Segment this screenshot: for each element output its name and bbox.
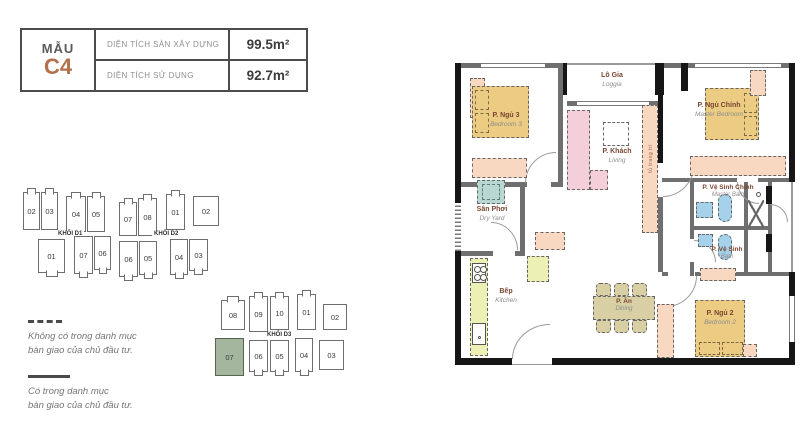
unit-box: 04 [66,196,86,232]
cabinet [535,232,565,250]
unit-box: 03 [41,192,58,230]
room-label-bath: P. Vệ Sinh Bath [693,246,761,262]
room-label-dry-yard: Sân Phơi Dry Yard [461,206,523,223]
window [481,63,545,68]
unit-box-highlighted: 07 [215,338,244,376]
legend: Không có trong danh mục bàn giao của chủ… [28,320,198,413]
tv-cabinet: tủ trang trí [642,105,658,233]
wall [690,262,694,276]
legend-solid-line [28,375,70,378]
room-name-en: Master Bedroom [679,111,759,119]
door-arc [512,324,550,359]
kitchen-sink [472,323,486,345]
room-name-vi: P. Vệ Sinh Chính [691,184,765,192]
legend-text-not-included: Không có trong danh mục bàn giao của chủ… [28,330,198,359]
legend-text-included: Có trong danh mục bàn giao của chủ đầu t… [28,385,198,414]
bed [695,300,745,357]
unit-box: 07 [74,236,93,274]
window [695,63,781,68]
room-label-bedroom3: P. Ngủ 3 Bedroom 3 [475,112,537,129]
room-label-master-bath: P. Vệ Sinh Chính Master Bath [691,184,765,200]
room-name-en: Dining [593,306,655,314]
area-rows: DIỆN TÍCH SÀN XÂY DỰNG 99.5m² DIỆN TÍCH … [96,30,306,90]
window [789,296,795,342]
wall-column [681,63,688,91]
room-name-vi: P. Vệ Sinh [693,246,761,254]
wall [766,186,772,204]
area-row-usable: DIỆN TÍCH SỬ DỤNG 92.7m² [96,61,306,90]
room-name-en: Bath [693,254,761,262]
washing-machine [477,180,505,204]
room-name-en: Living [591,157,643,165]
bathroom-sink [696,202,713,218]
dining-chair [614,283,629,296]
pillow [699,342,720,355]
unit-box: 10 [270,296,289,330]
unit-box: 05 [139,241,157,275]
room-name-vi: Sân Phơi [461,206,523,215]
legend-line: bàn giao của chủ đầu tư. [28,344,198,358]
door-arc [770,204,788,222]
dining-chair [632,283,647,296]
unit-box: 04 [295,338,313,372]
legend-dashed-line [28,320,62,323]
wardrobe [690,156,786,176]
kitchen-counter [470,258,488,356]
room-label-kitchen: Bếp Kitchen [477,288,535,305]
pillow [744,116,757,136]
washer-drum [482,184,500,200]
room-name-en: Bedroom 2 [683,319,757,327]
room-name-vi: Bếp [477,288,535,297]
room-name-en: Loggia [583,81,641,89]
door-arc [666,276,697,307]
room-name-vi: Lô Gia [583,72,641,81]
spec-table: MẪU C4 DIỆN TÍCH SÀN XÂY DỰNG 99.5m² DIỆ… [20,28,308,92]
door-arc [525,152,556,183]
model-label: MẪU [42,42,75,56]
room-name-vi: P. Khách [591,148,643,157]
room-label-bedroom2: P. Ngủ 2 Bedroom 2 [683,310,757,327]
coffee-table [603,122,629,146]
sofa [590,170,608,190]
wardrobe [472,158,527,178]
unit-box: 01 [38,239,65,273]
loggia-rail [563,63,663,65]
unit-box: 02 [323,304,347,330]
wall [658,197,663,272]
unit-box: 01 [166,194,185,230]
floorplan: tủ trang trí [455,56,795,368]
block-label-d2: KHỐI D2 [152,231,180,237]
unit-box: 09 [249,296,268,332]
wall [455,251,461,365]
block-diagram-d1-d2: 02 03 04 05 07 08 01 02 KHỐI D1 KHỐI D2 … [18,186,230,286]
model-code: C4 [44,55,72,78]
room-name-vi: P. Ngủ 3 [475,112,537,121]
unit-box: 01 [297,294,316,330]
wall [455,358,795,365]
unit-box: 06 [119,241,138,277]
legend-line: bàn giao của chủ đầu tư. [28,399,198,413]
wall [758,178,793,182]
unit-box: 06 [94,236,111,270]
dining-chair [614,320,629,333]
unit-box: 07 [119,202,137,236]
wardrobe [700,268,736,281]
unit-box: 05 [270,340,289,372]
legend-line: Có trong danh mục [28,385,198,399]
room-name-vi: P. Ngủ 2 [683,310,757,319]
door-arc [491,222,518,250]
wall [558,63,563,187]
wall [455,63,461,203]
block-diagram-d3: 08 09 10 01 02 KHỐI D3 07 06 05 04 03 [213,292,349,380]
room-name-vi: P. Ngủ Chính [679,102,759,111]
room-label-loggia: Lô Gia Loggia [583,72,641,89]
wall [515,251,525,256]
entrance-door-gap [512,358,552,365]
shower-x-icon [748,200,764,228]
dining-chair [632,320,647,333]
block-label-d3: KHỐI D3 [265,332,293,338]
tv-cabinet-label: tủ trang trí [648,144,654,173]
room-label-living: P. Khách Living [591,148,643,165]
area-label: DIỆN TÍCH SỬ DỤNG [96,61,228,90]
unit-box: 04 [170,239,188,275]
room-name-en: Kitchen [477,297,535,305]
unit-box: 03 [189,239,208,271]
unit-box: 05 [87,196,105,232]
room-label-dining: P. Ăn Dining [593,298,655,314]
pillow [722,342,743,355]
room-name-en: Bedroom 3 [475,121,537,129]
sofa [567,110,590,190]
dining-chair [596,283,611,296]
room-name-vi: P. Ăn [593,298,655,306]
cabinet [750,70,766,96]
wall [789,63,795,182]
legend-line: Không có trong danh mục [28,330,198,344]
area-value: 92.7m² [228,61,306,90]
stove [472,263,486,283]
unit-box: 03 [319,340,344,370]
area-value: 99.5m² [228,30,306,59]
window [577,101,649,106]
room-name-en: Master Bath [691,192,765,200]
unit-box: 06 [249,340,268,372]
cabinet [657,304,674,358]
cabinet [743,344,757,357]
model-cell: MẪU C4 [22,30,96,90]
wall [766,234,772,252]
room-name-en: Dry Yard [461,215,523,223]
room-label-master-bedroom: P. Ngủ Chính Master Bedroom [679,102,759,119]
unit-box: 02 [193,196,219,226]
unit-box: 02 [23,192,40,230]
dining-chair [596,320,611,333]
area-row-built: DIỆN TÍCH SÀN XÂY DỰNG 99.5m² [96,30,306,61]
brochure-page: MẪU C4 DIỆN TÍCH SÀN XÂY DỰNG 99.5m² DIỆ… [0,0,800,442]
area-label: DIỆN TÍCH SÀN XÂY DỰNG [96,30,228,59]
wall [658,90,663,163]
unit-box: 08 [221,300,245,330]
fridge [527,256,549,282]
ledge-rail [791,182,793,272]
pillow [475,90,489,110]
